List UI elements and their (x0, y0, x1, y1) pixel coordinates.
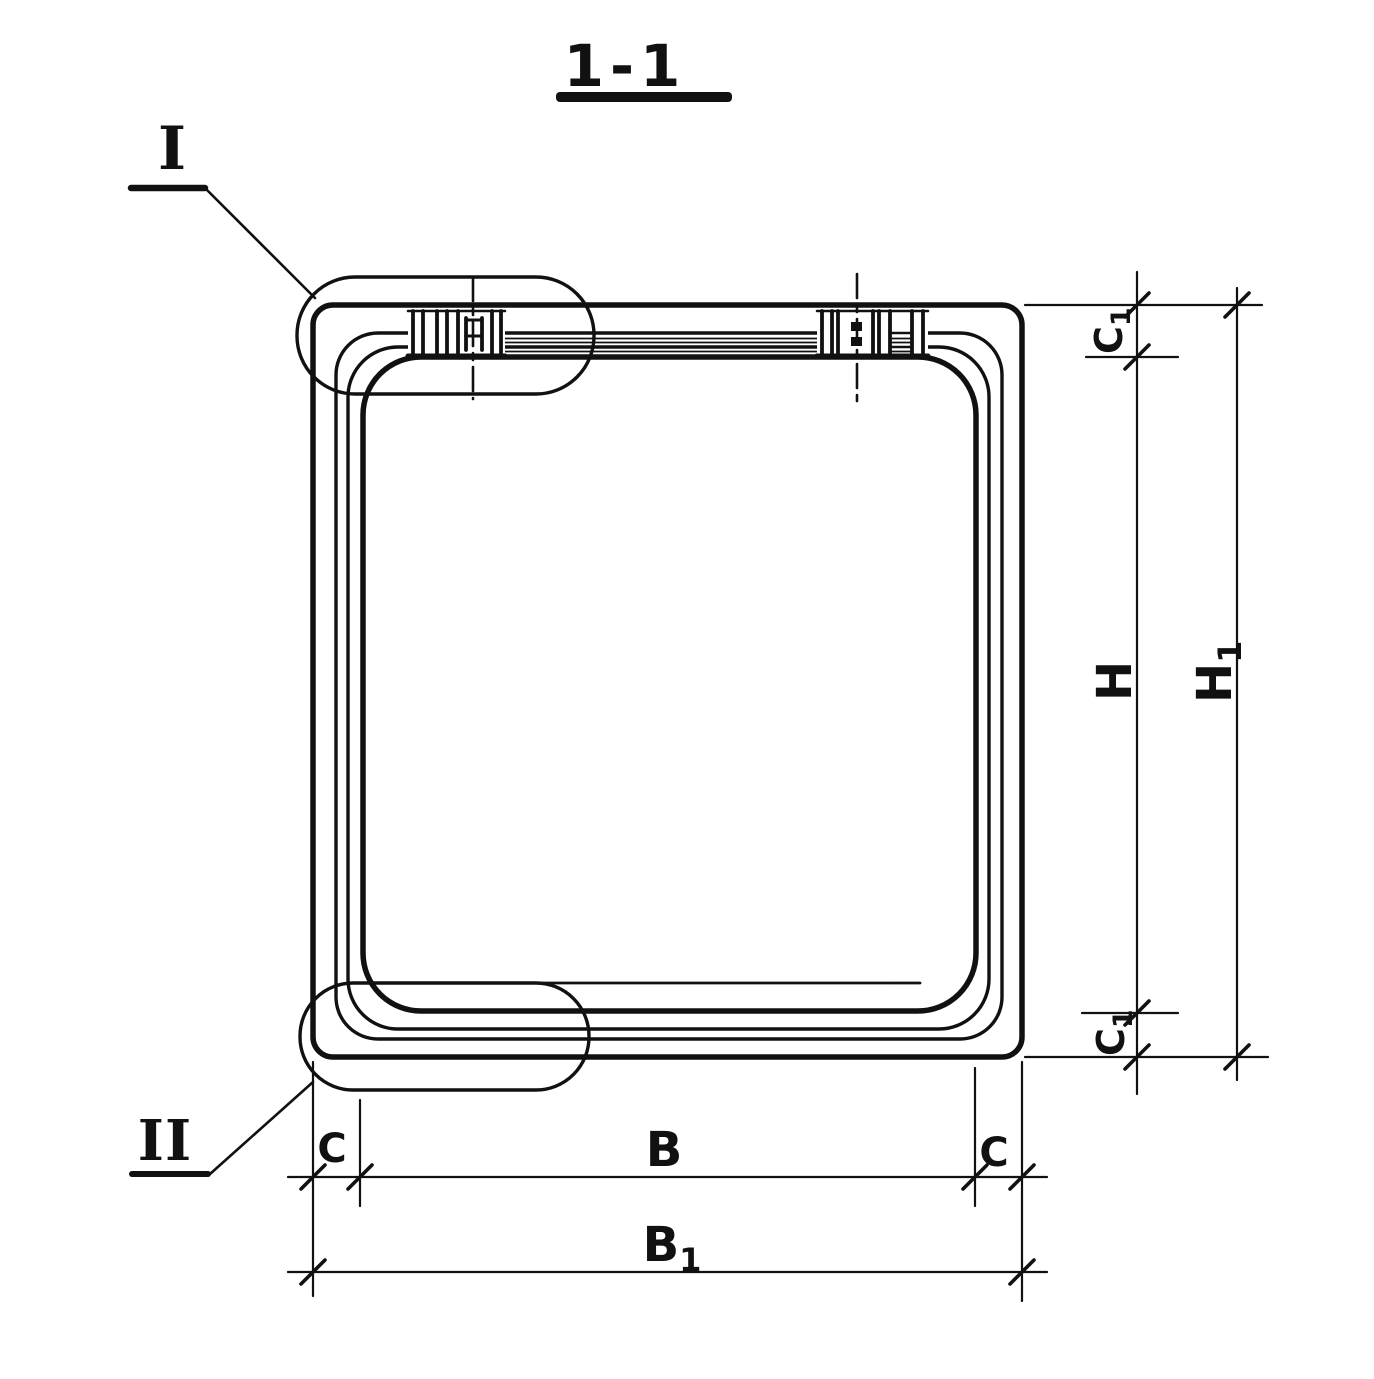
top-joint-right (817, 274, 928, 401)
dim-label-H1: H1 (1187, 641, 1249, 703)
top-joint-left (408, 277, 505, 399)
view-title-underline (556, 92, 732, 102)
dim-label-B: B (646, 1122, 683, 1178)
dim-label-C1-top: C1 (1087, 307, 1137, 354)
detail-balloon-2 (300, 983, 589, 1090)
section-outer-wall (313, 305, 1022, 1057)
detail-label-2: II (138, 1108, 192, 1174)
dim-label-sub: 1 (1211, 641, 1249, 663)
dim-label-C1-bottom: C1 (1089, 1009, 1139, 1056)
detail-label-1: I (158, 114, 186, 184)
culvert-section (313, 274, 1022, 1057)
dimensions-right: C1 H H1 C1 (1025, 272, 1268, 1094)
wall-layer-line-outer (336, 333, 1002, 1039)
detail-leader-2 (210, 1082, 313, 1174)
dim-label-sub: 1 (1106, 307, 1137, 326)
detail-leader-1 (205, 188, 315, 298)
dim-label-main: C (317, 1126, 346, 1172)
dim-label-main: B (646, 1122, 683, 1178)
dimensions-bottom: C B C B1 (288, 1062, 1047, 1301)
dim-label-main: H (1187, 663, 1243, 703)
view-title: 1-1 (556, 32, 732, 102)
dim-label-sub: 1 (1108, 1009, 1139, 1028)
top-slab-lines (505, 339, 817, 352)
dim-label-main: C (1089, 1028, 1133, 1056)
section-inner-surface (363, 357, 976, 1011)
view-title-label: 1-1 (564, 32, 687, 100)
wall-layer-line-inner (348, 347, 989, 1029)
dim-label-main: C (979, 1130, 1008, 1176)
dim-label-sub: 1 (679, 1241, 701, 1279)
dim-label-main: C (1087, 326, 1131, 354)
dim-label-main: B (643, 1217, 680, 1273)
dim-label-H: H (1087, 661, 1143, 701)
dim-label-main: H (1087, 661, 1143, 701)
section-drawing: 1-1 (0, 0, 1374, 1379)
dim-label-C-left: C (317, 1126, 346, 1172)
dim-label-B1: B1 (643, 1217, 702, 1279)
dim-label-C-right: C (979, 1130, 1008, 1176)
drawing-sheet: 1-1 (0, 0, 1374, 1379)
